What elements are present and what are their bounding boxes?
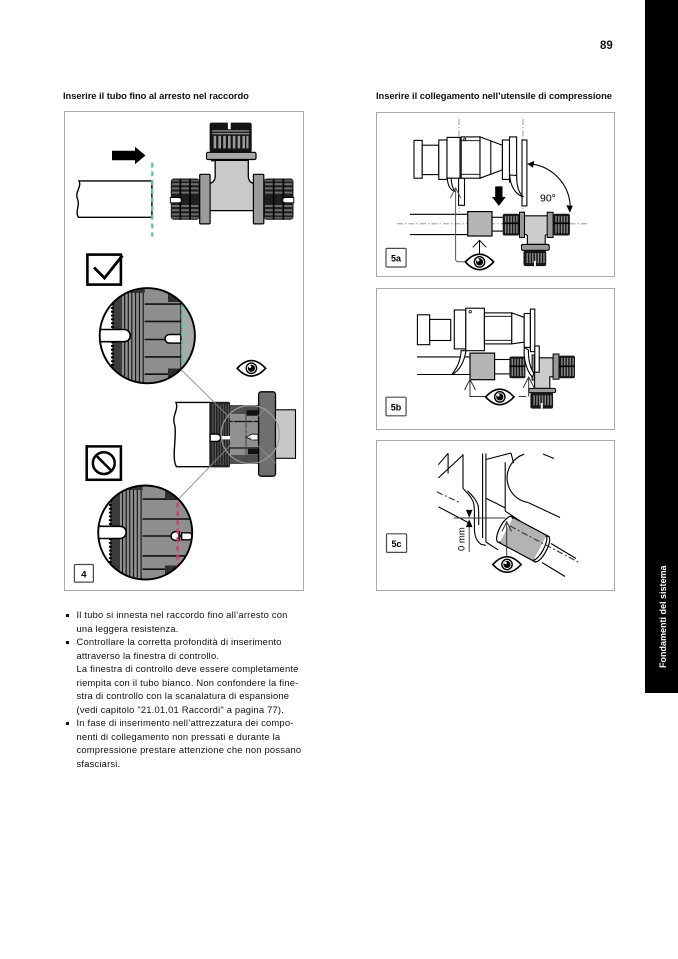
svg-text:5a: 5a: [391, 254, 402, 264]
svg-text:5b: 5b: [391, 402, 402, 412]
svg-text:0 mm: 0 mm: [457, 527, 468, 551]
svg-text:5c: 5c: [391, 539, 401, 549]
svg-text:4: 4: [81, 569, 87, 580]
svg-text:90°: 90°: [540, 193, 556, 205]
